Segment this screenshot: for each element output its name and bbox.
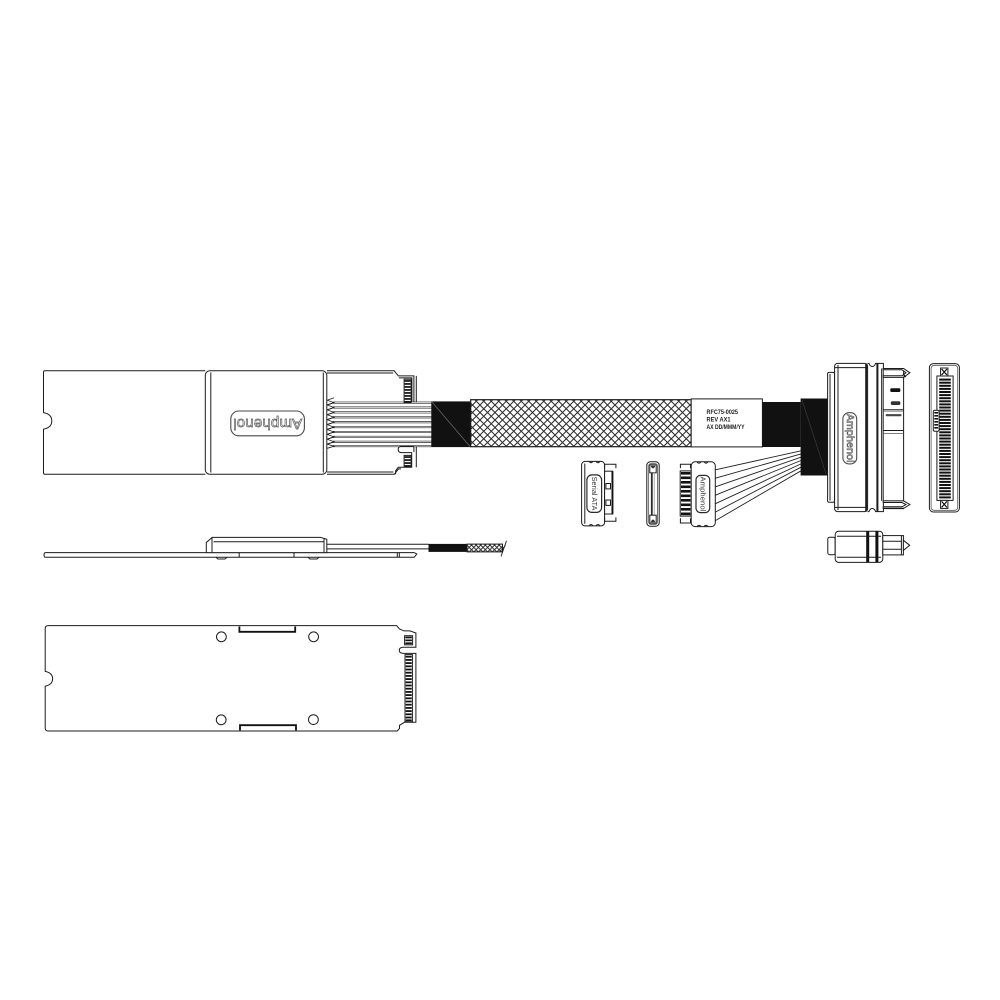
svg-text:Amphenol: Amphenol xyxy=(844,414,856,463)
svg-text:Amphenol: Amphenol xyxy=(698,477,707,512)
svg-text:Serial ATA: Serial ATA xyxy=(590,477,599,511)
svg-text:RFC75-0025: RFC75-0025 xyxy=(707,410,739,416)
svg-text:Amphenol: Amphenol xyxy=(233,415,302,432)
svg-text:AX DD/MMM/YY: AX DD/MMM/YY xyxy=(707,425,745,431)
svg-text:REV AX1: REV AX1 xyxy=(707,418,732,424)
